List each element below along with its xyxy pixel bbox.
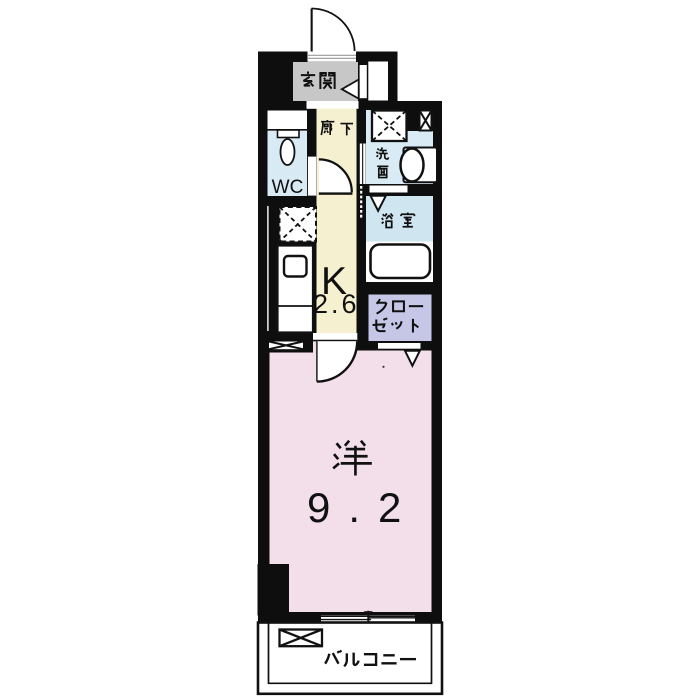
svg-text:9.2: 9.2 (307, 484, 419, 531)
svg-text:2.6: 2.6 (313, 289, 360, 319)
svg-text:WC: WC (272, 177, 304, 198)
